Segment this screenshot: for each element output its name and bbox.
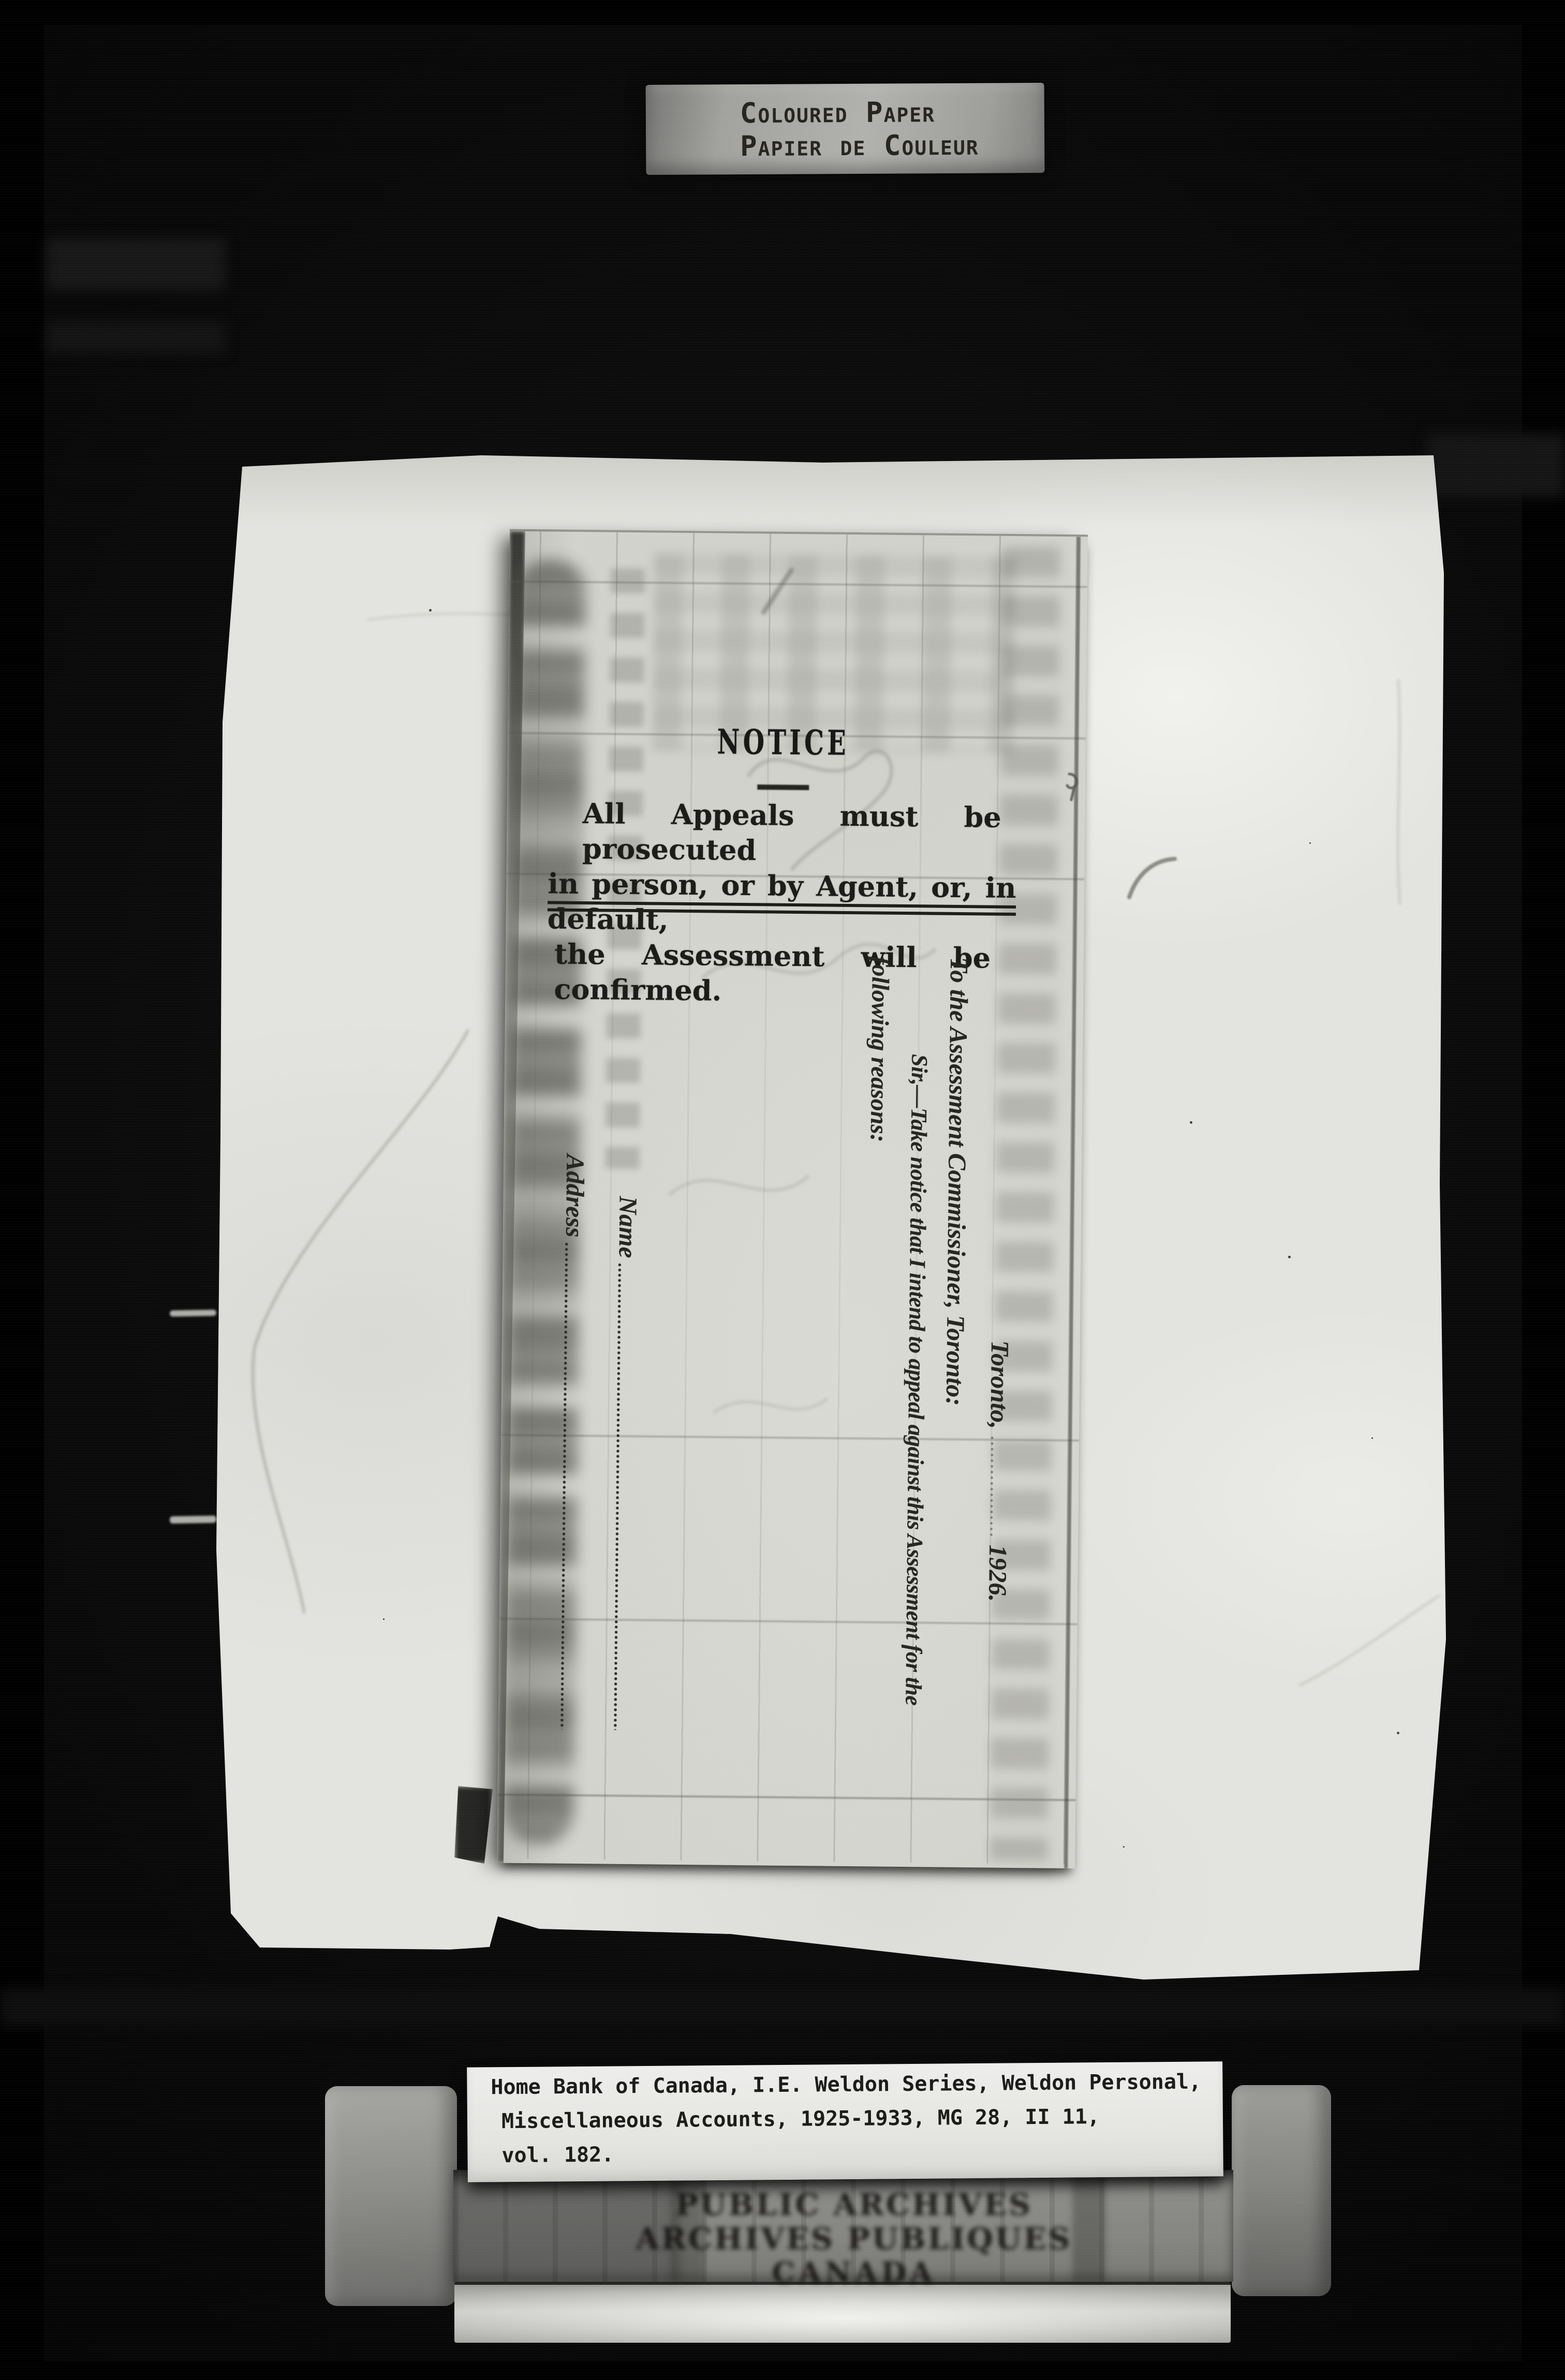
coloured-paper-label-line-fr: Papier de Couleur	[740, 129, 979, 162]
microfilm-photo: Coloured Paper Papier de Couleur	[0, 0, 1565, 2380]
notice-title: NOTICE	[549, 720, 1018, 765]
address-dotted-line	[559, 1241, 570, 1729]
notice-divider-dash	[757, 784, 809, 790]
coloured-paper-label-line-en: Coloured Paper	[740, 96, 936, 129]
address-line: Address	[555, 1154, 590, 1730]
cradle-bottom-strip	[454, 2282, 1231, 2343]
appeal-form-rotated: Toronto, 1926. To the Assessment Commiss…	[552, 954, 1026, 1765]
film-light-band	[1427, 434, 1565, 497]
notice-title-text: NOTICE	[717, 722, 850, 763]
film-scratch	[170, 1310, 216, 1317]
reference-label-line: Home Bank of Canada, I.E. Weldon Series,…	[491, 2070, 1201, 2100]
date-line: Toronto, 1926.	[983, 958, 1018, 1602]
date-year-label: 1926.	[983, 1544, 1013, 1602]
address-label: Address	[560, 1154, 590, 1238]
reference-label-line: Miscellaneous Accounts, 1925-1933, MG 28…	[501, 2105, 1100, 2133]
notice-paragraph-line: All Appeals must be prosecuted	[548, 795, 1017, 870]
date-indent	[992, 958, 995, 1341]
pen-hook-mark	[1123, 855, 1180, 904]
cradle-right-block	[1232, 2085, 1331, 2296]
name-dotted-line	[612, 1262, 623, 1730]
notice-card: NOTICE All Appeals must be prosecuted in…	[497, 529, 1088, 1869]
reference-label-line: vol. 182.	[501, 2143, 614, 2168]
small-pen-mark	[1059, 769, 1090, 805]
form-body-line-1: Sir,—Take notice that I intend to appeal…	[899, 957, 934, 1764]
public-archives-stamp: PUBLIC ARCHIVES ARCHIVES PUBLIQUES CANAD…	[611, 2188, 1097, 2290]
archive-reference-label: Home Bank of Canada, I.E. Weldon Series,…	[467, 2061, 1223, 2182]
stamp-line-canada: CANADA	[611, 2256, 1097, 2290]
cradle-left-block	[325, 2086, 457, 2306]
date-blank-dotted-line	[988, 1435, 995, 1539]
film-light-band	[47, 238, 225, 290]
film-light-band	[47, 322, 225, 353]
film-light-band	[0, 1989, 1565, 2026]
stamp-line-fr: ARCHIVES PUBLIQUES	[611, 2222, 1097, 2256]
form-body-line-2: following reasons:	[865, 956, 894, 1142]
notice-block: NOTICE All Appeals must be prosecuted in…	[547, 718, 1017, 940]
name-label: Name	[613, 1196, 643, 1258]
date-city-label: Toronto,	[984, 1341, 1015, 1430]
stamp-line-en: PUBLIC ARCHIVES	[611, 2188, 1097, 2222]
salutation-line: To the Assessment Commissioner, Toronto:	[940, 957, 974, 1406]
coloured-paper-label: Coloured Paper Papier de Couleur	[646, 83, 1045, 175]
film-scratch	[170, 1515, 216, 1524]
appeal-form-content: Toronto, 1926. To the Assessment Commiss…	[552, 954, 1026, 1765]
name-line: Name	[609, 1196, 643, 1730]
